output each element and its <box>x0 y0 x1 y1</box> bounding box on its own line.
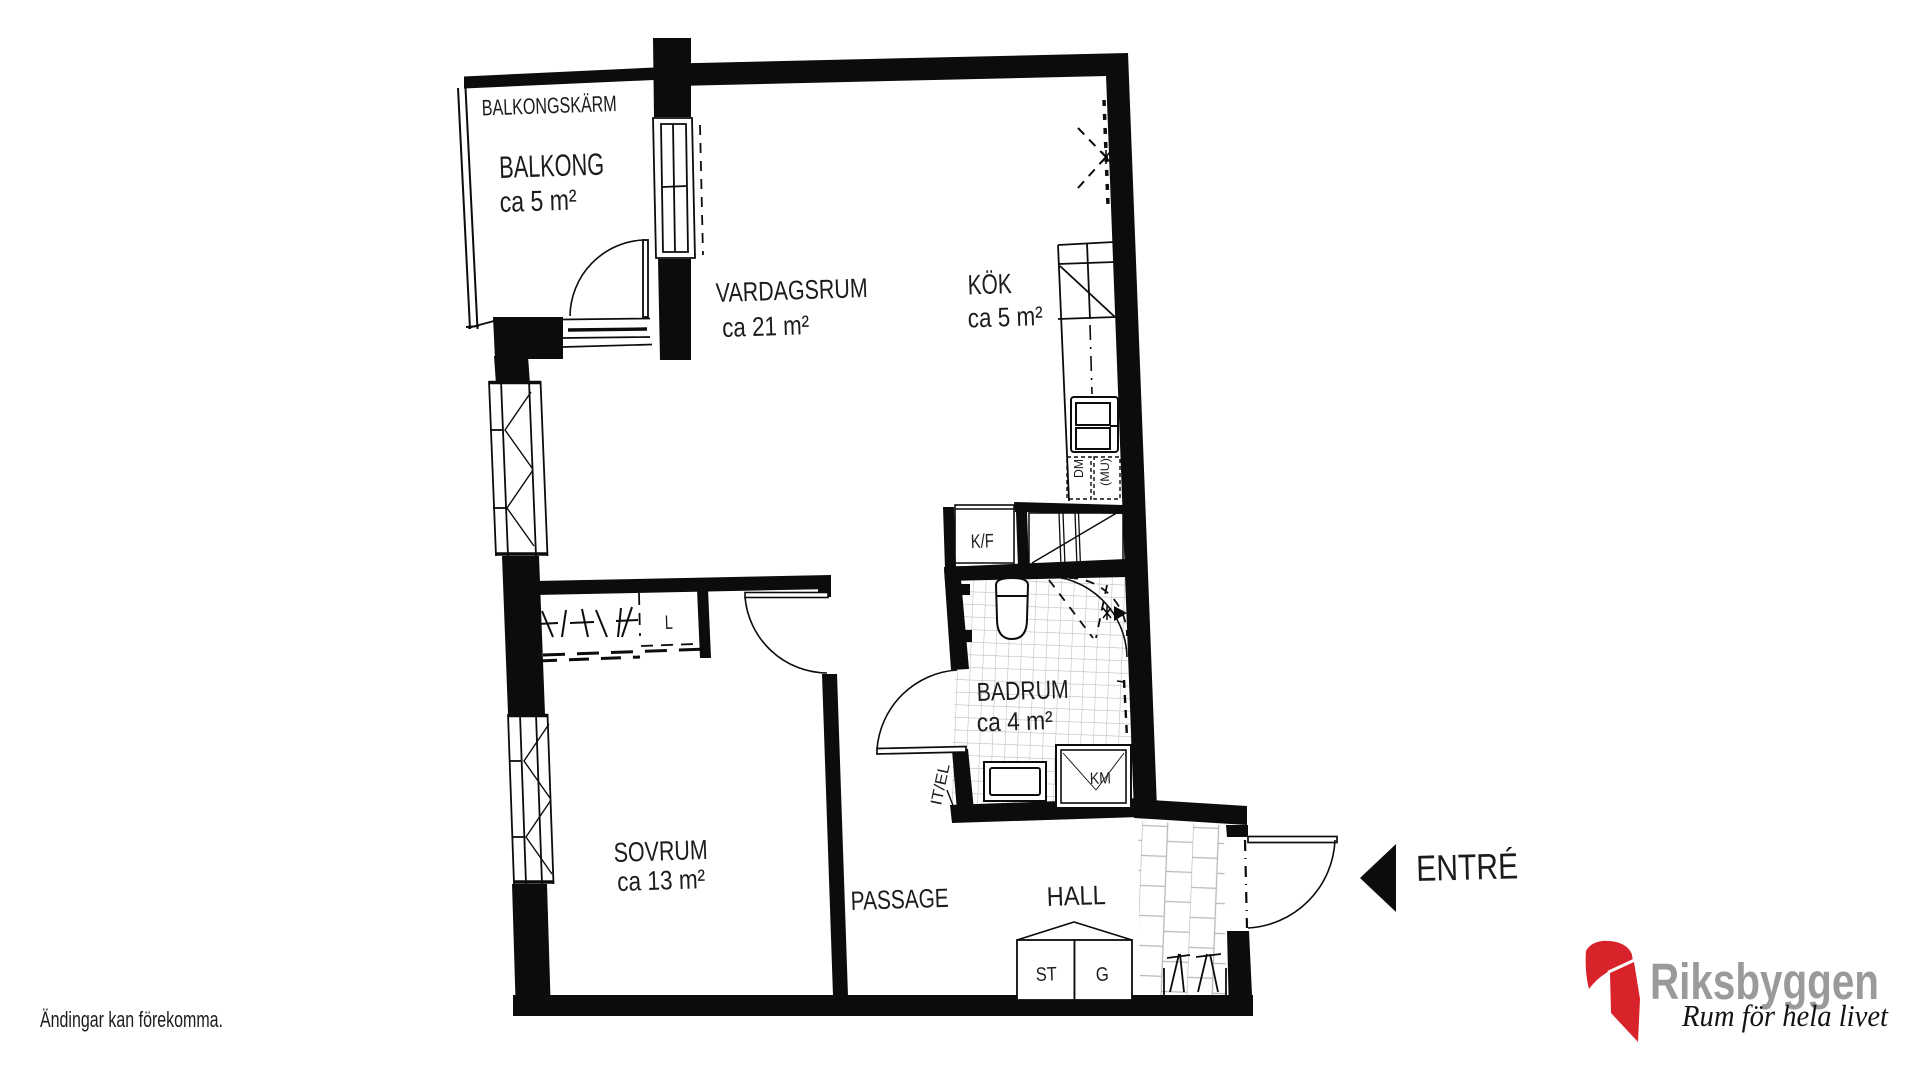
svg-text:BADRUM: BADRUM <box>976 674 1069 707</box>
svg-text:DM: DM <box>1071 459 1086 478</box>
svg-text:ca 5 m²: ca 5 m² <box>967 301 1043 333</box>
svg-text:SOVRUM: SOVRUM <box>613 834 708 868</box>
svg-text:KM: KM <box>1090 769 1112 788</box>
svg-text:PASSAGE: PASSAGE <box>850 883 949 916</box>
svg-text:K/F: K/F <box>970 530 994 553</box>
svg-text:ca 4 m²: ca 4 m² <box>976 705 1053 738</box>
svg-text:ca 21 m²: ca 21 m² <box>722 310 810 343</box>
svg-text:Ändingar kan förekomma.: Ändingar kan förekomma. <box>40 1007 223 1032</box>
svg-text:VARDAGSRUM: VARDAGSRUM <box>715 273 868 308</box>
svg-text:ca 13 m²: ca 13 m² <box>617 864 706 897</box>
svg-text:HALL: HALL <box>1046 880 1106 912</box>
svg-text:BALKONG: BALKONG <box>499 147 605 185</box>
svg-text:ENTRÉ: ENTRÉ <box>1416 845 1519 889</box>
svg-text:L: L <box>664 612 673 634</box>
svg-text:KÖK: KÖK <box>967 268 1012 300</box>
svg-text:(MU): (MU) <box>1098 458 1112 486</box>
svg-text:Rum för hela livet: Rum för hela livet <box>1681 998 1889 1033</box>
svg-text:BALKONGSKÄRM: BALKONGSKÄRM <box>481 91 617 120</box>
svg-text:ST: ST <box>1035 963 1057 986</box>
svg-text:G: G <box>1095 964 1109 986</box>
svg-text:ca 5 m²: ca 5 m² <box>499 184 577 219</box>
